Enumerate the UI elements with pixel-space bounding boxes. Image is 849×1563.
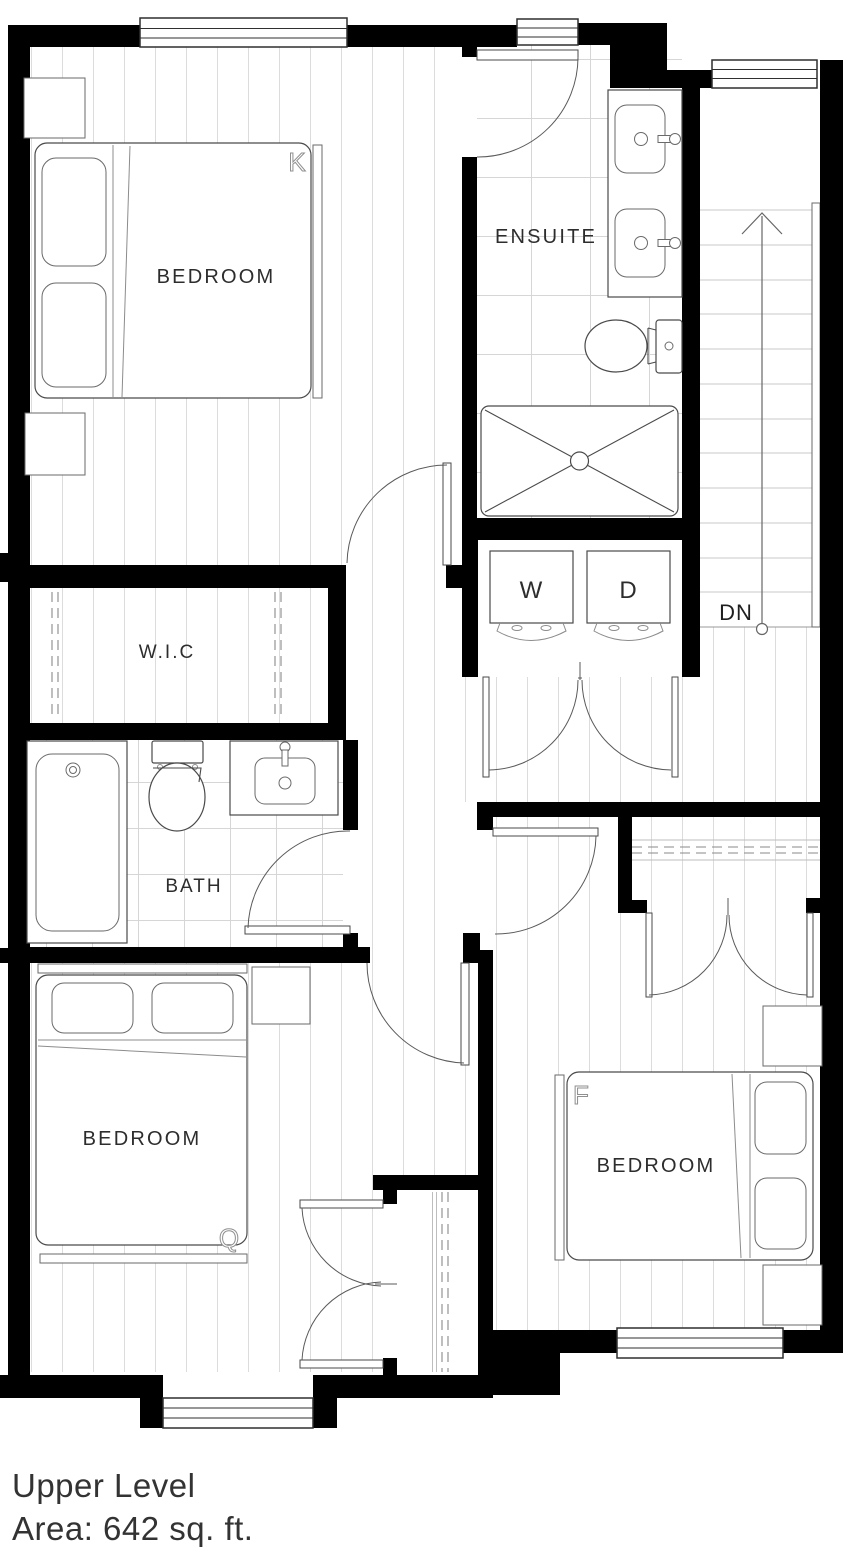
bath-sink bbox=[230, 741, 338, 815]
wall-right bbox=[820, 60, 843, 1353]
nightstand bbox=[24, 78, 85, 138]
wall-bottom-left-2 bbox=[337, 1375, 493, 1398]
wall-bath-south bbox=[8, 947, 370, 963]
bed-size-letter: F bbox=[573, 1080, 589, 1110]
wall-window-jamb-right bbox=[313, 1375, 337, 1428]
wall-bedroom-right-north bbox=[477, 802, 843, 817]
wall-ensuite-west bbox=[462, 157, 477, 518]
floor-stairwell bbox=[700, 88, 820, 627]
wall-top-1 bbox=[8, 25, 140, 47]
stair-railing bbox=[812, 203, 820, 627]
nightstand bbox=[763, 1006, 822, 1066]
window-bedroom-right bbox=[617, 1328, 783, 1358]
shower-drain bbox=[571, 452, 589, 470]
window-bedroom-left bbox=[163, 1398, 313, 1428]
bedroom-top-label: BEDROOM bbox=[157, 266, 276, 288]
door-jamb bbox=[646, 913, 652, 997]
wall-wic-east bbox=[328, 588, 346, 723]
wall-closet-right-stub bbox=[618, 900, 647, 913]
floor-plan-drawing: DN bbox=[0, 0, 849, 1563]
wall-bottom-right-1 bbox=[478, 1330, 617, 1353]
wall-shower-south bbox=[462, 518, 700, 540]
ensuite-toilet bbox=[585, 320, 682, 373]
bedroom-left-label: BEDROOM bbox=[83, 1128, 202, 1150]
door-jamb bbox=[483, 677, 489, 777]
wall-left bbox=[8, 25, 30, 1395]
bed-size-letter: K bbox=[288, 147, 306, 177]
wall-bedroom-door-stub bbox=[446, 565, 462, 588]
floor-plan-page: DN bbox=[0, 0, 849, 1563]
wall-stair-west bbox=[682, 88, 700, 677]
pillow bbox=[755, 1082, 806, 1154]
wall-top-2 bbox=[347, 25, 517, 47]
wall-pilaster-1 bbox=[0, 553, 8, 582]
wall-closet-right-east-stub bbox=[806, 898, 820, 913]
bed-foot-board bbox=[40, 1254, 247, 1263]
shower bbox=[481, 406, 678, 516]
pillow bbox=[52, 983, 133, 1033]
wall-bath-north bbox=[8, 723, 346, 740]
wall-stair-top bbox=[610, 70, 712, 88]
floor-closet-left bbox=[390, 1190, 478, 1372]
bed-foot-board bbox=[555, 1075, 564, 1260]
wic-label: W.I.C bbox=[139, 642, 195, 663]
door-jamb bbox=[672, 677, 678, 777]
wall-bedroom-right-door-stub bbox=[477, 817, 493, 830]
bedroom-right-label: BEDROOM bbox=[597, 1155, 716, 1177]
floor-stair-hall bbox=[700, 627, 820, 802]
wall-laundry-west bbox=[462, 540, 478, 677]
floor-hall-lower bbox=[462, 677, 700, 802]
wall-pilaster-2 bbox=[0, 948, 8, 963]
window-ensuite bbox=[517, 19, 578, 45]
wall-closet-left-north bbox=[373, 1175, 493, 1190]
plan-area: Area: 642 sq. ft. bbox=[12, 1510, 253, 1547]
nightstand bbox=[25, 413, 85, 475]
wall-bedroom-right-west bbox=[478, 950, 493, 1353]
nightstand bbox=[763, 1265, 822, 1325]
stairs-down-label: DN bbox=[719, 600, 753, 625]
wall-top-3 bbox=[578, 23, 667, 45]
bed-foot-board bbox=[313, 145, 322, 398]
bed-queen: Q bbox=[36, 964, 247, 1263]
wall-bottom-left-1 bbox=[0, 1375, 140, 1398]
bed-size-letter: Q bbox=[219, 1223, 239, 1253]
wall-wic-north bbox=[8, 565, 346, 588]
washer-label: W bbox=[520, 577, 544, 604]
floor-hallway bbox=[346, 565, 462, 963]
dryer-label: D bbox=[619, 577, 637, 604]
floor-doorway-right bbox=[477, 830, 493, 933]
wall-bath-east bbox=[343, 740, 358, 830]
toilet-tank bbox=[152, 741, 203, 763]
bath-label: BATH bbox=[165, 876, 222, 897]
pillow bbox=[42, 158, 106, 266]
bed-head-board bbox=[38, 964, 247, 973]
pillow bbox=[42, 283, 106, 387]
window-bedroom-top bbox=[140, 18, 347, 47]
pillow bbox=[152, 983, 233, 1033]
door-jamb bbox=[807, 913, 813, 997]
window-stairwell bbox=[712, 60, 817, 88]
toilet-bowl bbox=[149, 763, 205, 831]
bath-toilet bbox=[149, 741, 205, 831]
ensuite-label: ENSUITE bbox=[495, 226, 597, 248]
wall-top-4 bbox=[610, 45, 667, 70]
wall-bottom-right-2 bbox=[783, 1330, 843, 1353]
wall-closet-left-jamb-bottom bbox=[383, 1358, 397, 1375]
wall-hall-corner bbox=[463, 933, 480, 963]
toilet-bowl bbox=[585, 320, 647, 372]
bathtub bbox=[27, 741, 127, 943]
nightstand bbox=[252, 967, 310, 1024]
plan-title: Upper Level bbox=[12, 1467, 195, 1504]
wall-window-jamb-left bbox=[140, 1375, 163, 1428]
wall-closet-right-west bbox=[618, 815, 632, 900]
wall-bath-east-stub bbox=[343, 933, 358, 947]
wall-closet-left-jamb-top bbox=[383, 1190, 397, 1204]
wall-ensuite-door-stub bbox=[462, 45, 477, 57]
plan-footer: Upper Level Area: 642 sq. ft. bbox=[12, 1467, 253, 1547]
pillow bbox=[755, 1178, 806, 1249]
